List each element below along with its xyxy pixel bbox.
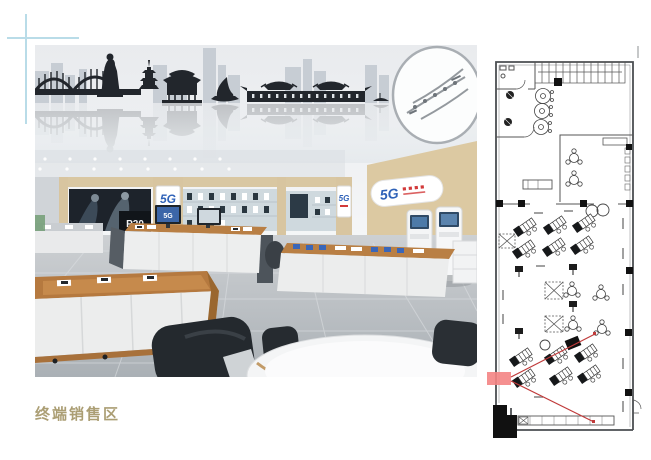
plan-column — [554, 78, 562, 86]
wall-shelf-bay-2 — [286, 191, 336, 231]
table-monitor-2 — [197, 208, 221, 228]
lightbox-5g-left-label: 5G — [160, 192, 176, 206]
ink-painting-circle — [393, 47, 477, 143]
slide-page: P20 5G — [0, 0, 651, 460]
display-table-accessories — [277, 243, 455, 297]
section-caption: 终端销售区 — [35, 403, 120, 424]
white-shelf-cabinet — [453, 241, 477, 283]
bay-fascia — [35, 177, 345, 187]
lightbox-5g-mid-label: 5G — [339, 194, 350, 203]
plan-highlight-marker — [487, 372, 511, 385]
ceiling-strip — [35, 150, 345, 178]
lightbox-5g-mid: 5G — [337, 186, 351, 217]
oval-5g-label: 5G — [379, 185, 399, 203]
store-rendering-image: P20 5G — [35, 45, 477, 377]
crosshair-vertical-line — [25, 14, 27, 124]
lounge-chair-right — [431, 319, 477, 368]
bay-pillar — [277, 177, 286, 235]
crosshair-horizontal-line — [7, 37, 79, 39]
monitor-5g-label: 5G — [163, 213, 173, 220]
floorplan-image — [486, 58, 642, 448]
